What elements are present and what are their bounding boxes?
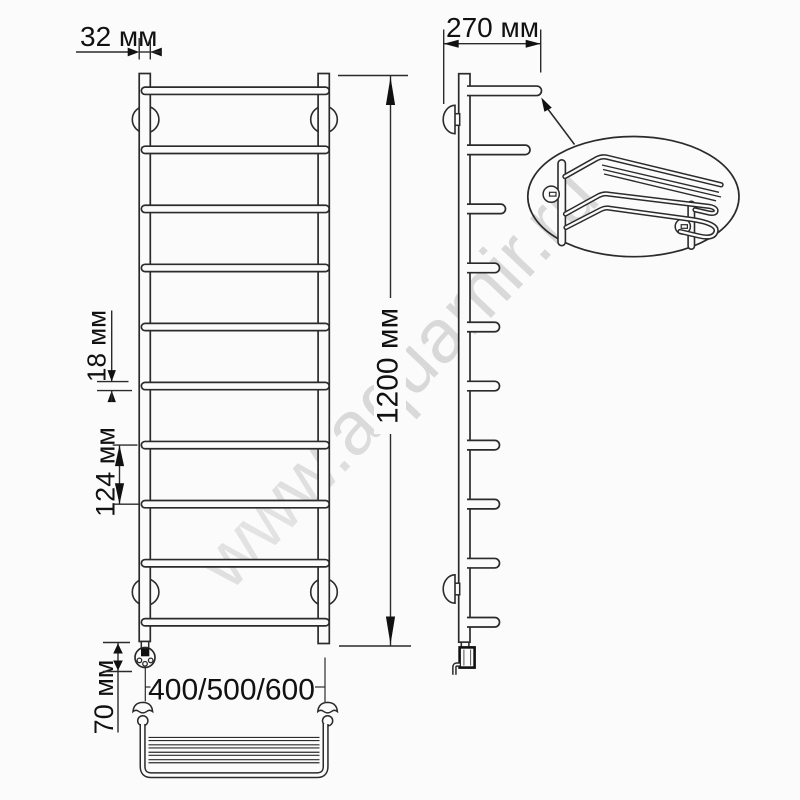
svg-text:32 мм: 32 мм bbox=[80, 21, 157, 52]
svg-text:1200 мм: 1200 мм bbox=[372, 308, 405, 424]
svg-text:270 мм: 270 мм bbox=[446, 12, 539, 43]
svg-text:124 мм: 124 мм bbox=[91, 427, 121, 517]
svg-text:400/500/600: 400/500/600 bbox=[148, 674, 315, 707]
svg-text:18 мм: 18 мм bbox=[82, 310, 112, 382]
